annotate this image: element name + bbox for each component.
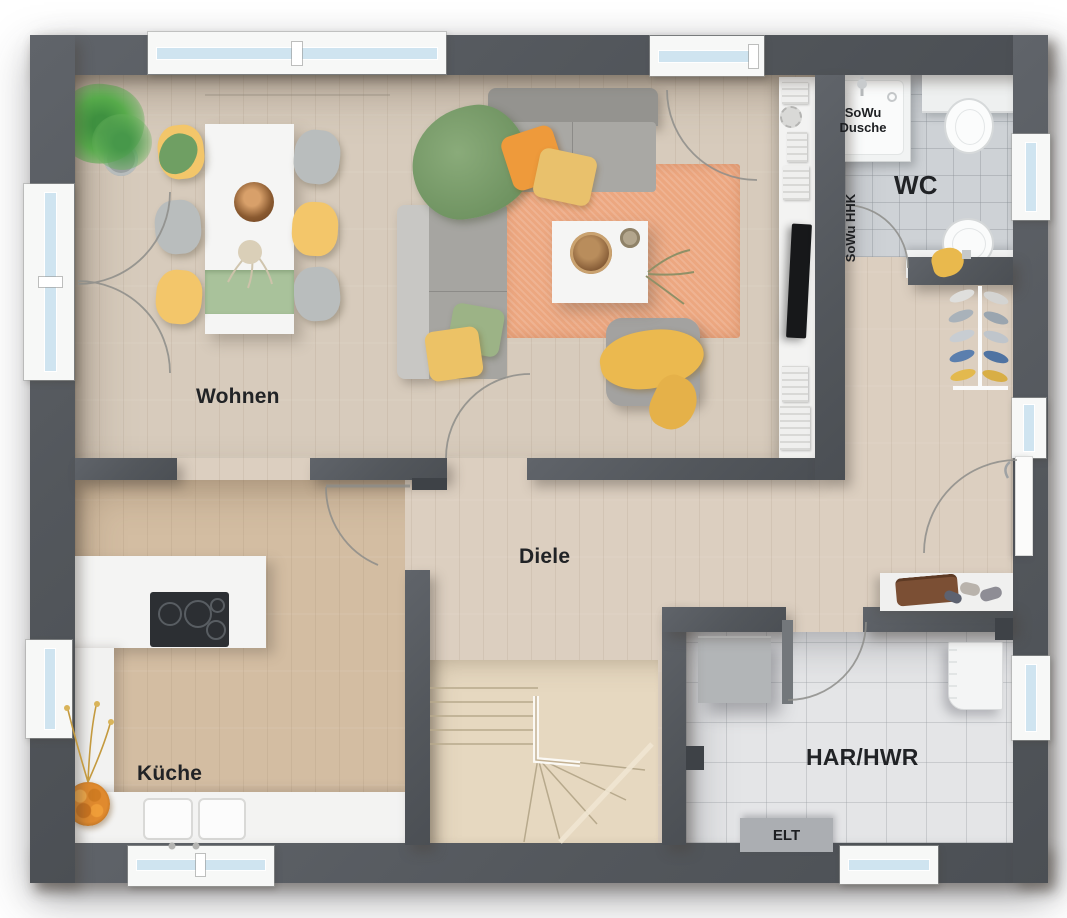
window-kueche-left — [26, 640, 72, 738]
sofa-seam — [429, 291, 507, 292]
window-handle — [39, 277, 62, 287]
toilet-bowl-inner — [955, 109, 985, 145]
dining-chair-grey — [153, 198, 203, 255]
plant-foliage — [92, 114, 152, 170]
window-har-right — [1012, 656, 1050, 740]
window-glass — [658, 50, 756, 63]
kitchen-sink-basin — [198, 798, 246, 840]
washing-machine — [948, 642, 1003, 710]
window-glass — [1025, 664, 1037, 732]
stairs-area — [428, 660, 658, 843]
window-wohnen-top — [148, 32, 446, 74]
book-stack — [780, 406, 810, 450]
room-label-wohnen: Wohnen — [196, 385, 280, 409]
window-har-bottom — [840, 846, 938, 884]
pillow-yellow-2 — [424, 325, 484, 382]
burner — [158, 602, 182, 626]
cooktop — [150, 592, 229, 647]
wall-kueche-stairs — [405, 570, 430, 845]
har-corner-block — [995, 618, 1013, 640]
coffee-table-tray — [570, 232, 612, 274]
towel-radiator-label: SoWu HHK — [843, 188, 859, 268]
room-label-wc: WC — [894, 170, 938, 201]
window-glass — [1025, 142, 1037, 212]
heat-pump-unit — [698, 636, 771, 703]
book-stack — [782, 82, 808, 104]
shower-label: SoWu Dusche — [830, 106, 896, 136]
dining-chair-yellow — [291, 201, 340, 257]
wall-wohnen-diele — [527, 458, 815, 480]
elt-label: ELT — [773, 827, 800, 844]
book-stack — [787, 132, 807, 162]
wall-har-left — [662, 607, 686, 845]
window-wc-right — [1012, 134, 1050, 220]
window-handle — [749, 45, 758, 68]
window-handle — [196, 854, 205, 876]
french-door-left — [24, 184, 74, 380]
decor-bowl — [234, 182, 274, 222]
window-handle — [292, 42, 302, 65]
elt-panel: ELT — [740, 818, 833, 852]
book-stack — [783, 166, 809, 200]
room-label-har-hwr: HAR/HWR — [806, 744, 919, 771]
book-stack — [782, 366, 808, 402]
terrace-door-top — [650, 36, 764, 76]
dining-chair-grey — [292, 265, 343, 323]
coffee-table-vase — [620, 228, 640, 248]
sofa-top-back — [488, 88, 658, 126]
window-kueche-bottom — [128, 846, 274, 886]
wall-wohnen-kueche — [75, 458, 177, 480]
window-glass — [1023, 404, 1035, 452]
floor-plan-canvas: ELT — [0, 0, 1067, 918]
burner — [206, 620, 226, 640]
kitchen-sink-basin — [143, 798, 193, 840]
door-jamb — [412, 478, 447, 490]
entry-sidelight — [1012, 398, 1046, 458]
window-glass — [848, 859, 930, 871]
toilet-bowl — [944, 98, 994, 154]
decor-gear — [780, 106, 802, 128]
entry-door-leaf — [1015, 456, 1033, 556]
wall-har-top-left — [662, 607, 786, 632]
window-glass — [44, 648, 56, 730]
har-door-leaf — [782, 620, 793, 704]
table-runner — [205, 270, 294, 314]
floor-kueche — [75, 480, 405, 843]
shower-drain — [887, 92, 897, 102]
room-label-diele: Diele — [519, 545, 570, 569]
wall-wohnen-kueche-2 — [310, 458, 447, 480]
har-wall-block — [686, 746, 704, 770]
burner — [210, 598, 225, 613]
room-label-kueche: Küche — [137, 762, 202, 786]
wall-outer-left — [30, 35, 75, 883]
